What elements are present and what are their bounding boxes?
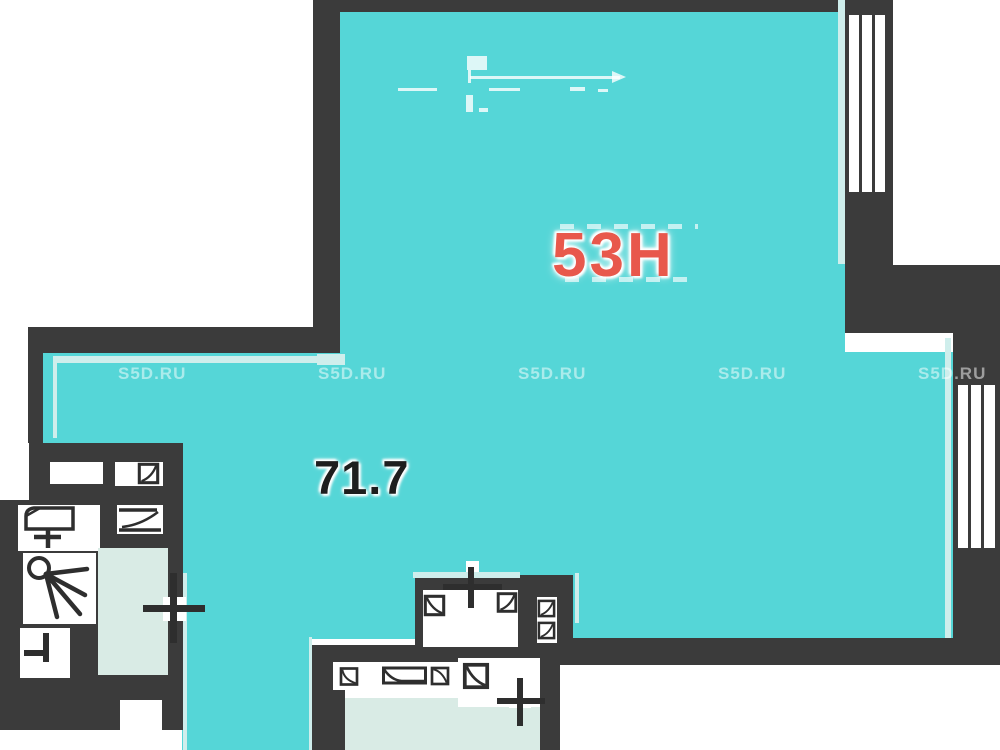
sink-room [18,505,100,551]
shower-room [23,553,96,624]
pillow-icon [137,462,160,485]
fixture-cutout [115,462,163,486]
erased-arrow-icon [612,71,626,83]
erased-dimension-mark [398,88,437,91]
pillow-icon [430,663,450,689]
light-edge-strip [838,0,845,264]
erased-dimension-mark [489,88,520,91]
main-room-floor [337,0,845,356]
toilet-room [20,628,70,678]
light-edge-strip [309,637,312,750]
toilet-icon [20,628,70,678]
light-edge-strip [575,573,579,623]
washer-icon [117,505,163,534]
light-edge-strip [53,356,57,438]
wall-bottom [556,638,1000,665]
unit-number-label: 53Н [552,220,675,291]
pillow-icon [496,590,518,615]
window-slat [875,15,885,192]
window-slat [958,385,968,548]
window-slat [862,15,872,192]
wall-step-right [845,265,1000,333]
erased-dimension-mark [466,95,473,112]
pillow-icon [423,592,446,619]
watermark: S5D.RU [518,364,598,384]
erased-dimension-mark [570,87,585,91]
washer-cutout [117,505,163,534]
pillow-icon [537,598,556,619]
main-room-floor-corridor [182,638,312,750]
erased-dimension-mark [479,108,488,112]
light-edge-strip [413,572,520,578]
door-cross-icon [468,567,474,608]
erased-dimension-mark [467,56,487,70]
furniture-strip [333,662,458,690]
bottom-room-wall-right [540,662,560,750]
erased-dimension-mark [468,70,471,83]
shelf-cutout [50,462,103,484]
window-slat [849,15,859,192]
light-edge-strip [53,356,345,363]
cabinet-icon [381,666,428,685]
erased-dimension-mark [598,89,608,92]
watermark: S5D.RU [918,364,998,384]
wall-left-upper [313,0,340,330]
pillow-icon [537,620,556,641]
pillow-icon [339,665,359,688]
watermark: S5D.RU [118,364,198,384]
closet-cutout [537,597,557,643]
sink-icon [18,505,100,551]
floor-plan: 53Н 71.7 S5D.RU S5D.RU S5D.RU S5D.RU S5D… [0,0,1000,750]
watermark: S5D.RU [718,364,798,384]
entry-door-gap [120,700,162,750]
door-cross-icon [170,573,177,643]
wall-notch [0,443,29,500]
watermark: S5D.RU [318,364,398,384]
pillow-icon [462,660,490,692]
wall-horizontal-left [28,327,340,353]
erased-dimension-mark [470,76,620,79]
window-slat [971,385,981,548]
shower-icon [23,553,96,624]
wall-top [318,0,893,12]
door-cross-icon [517,678,523,726]
area-value-label: 71.7 [314,450,409,505]
window-slat [984,385,995,548]
